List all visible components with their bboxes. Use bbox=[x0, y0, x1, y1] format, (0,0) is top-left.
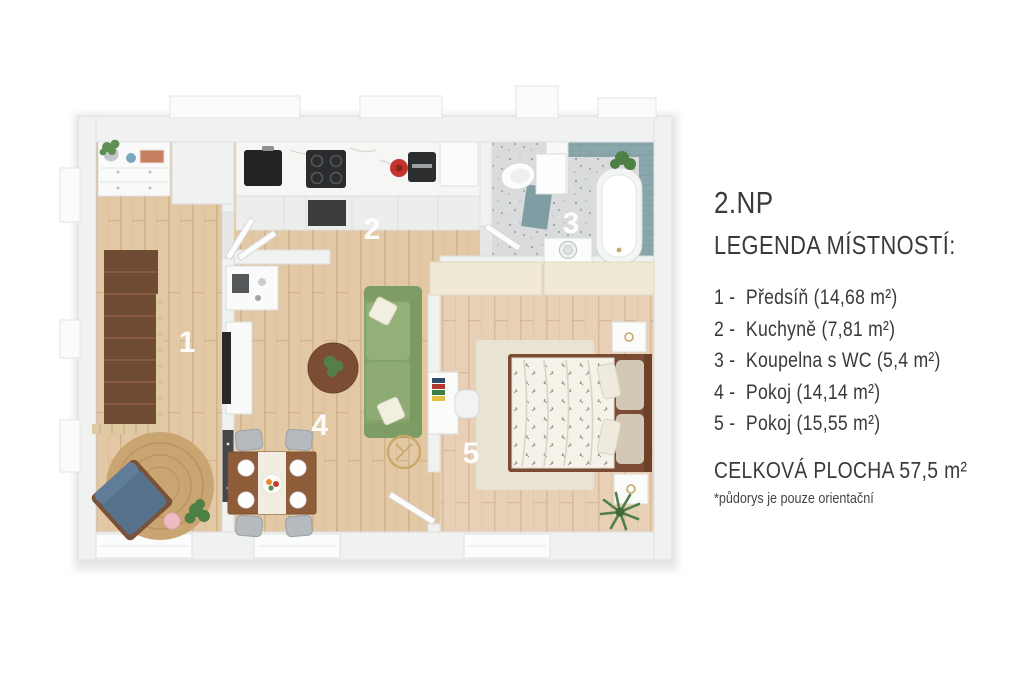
tv bbox=[222, 332, 231, 404]
coffee-table bbox=[308, 343, 358, 393]
room-label-5: 5 bbox=[463, 437, 480, 470]
dining-chair bbox=[235, 429, 263, 452]
plate bbox=[290, 460, 306, 476]
decor-bowl bbox=[126, 153, 136, 163]
plate bbox=[238, 460, 254, 476]
kitchen-sink bbox=[244, 150, 282, 186]
nightstand-top bbox=[612, 322, 646, 352]
legend-heading: LEGENDA MÍSTNOSTÍ: bbox=[714, 229, 991, 261]
bathtub bbox=[596, 168, 642, 264]
oven bbox=[308, 200, 346, 226]
legend-item-text: Pokoj (14,14 m²) bbox=[746, 377, 880, 409]
legend-item: 3 - Koupelna s WC (5,4 m²) bbox=[714, 345, 991, 377]
legend-item-text: Pokoj (15,55 m²) bbox=[746, 408, 880, 440]
total-area: CELKOVÁ PLOCHA 57,5 m² bbox=[714, 455, 991, 485]
kitchen-cabinet-fronts bbox=[236, 196, 480, 230]
wardrobe-right bbox=[544, 262, 654, 295]
room-label-2: 2 bbox=[364, 213, 381, 246]
dining-chair bbox=[285, 429, 313, 451]
dining-chair bbox=[235, 515, 263, 537]
sofa bbox=[364, 286, 422, 438]
espresso-machine bbox=[232, 274, 249, 293]
desk-chair bbox=[455, 390, 479, 418]
legend-list: 1 - Předsíň (14,68 m²) 2 - Kuchyně (7,81… bbox=[714, 282, 991, 440]
kitchen-counter bbox=[236, 142, 480, 230]
legend-item-number: 1 - bbox=[714, 282, 746, 314]
wardrobe-left bbox=[430, 262, 542, 295]
legend-item-text: Předsíň (14,68 m²) bbox=[746, 282, 898, 314]
legend-item-number: 4 - bbox=[714, 377, 746, 409]
legend-item-number: 5 - bbox=[714, 408, 746, 440]
room-label-4: 4 bbox=[312, 409, 329, 442]
legend-item: 2 - Kuchyně (7,81 m²) bbox=[714, 314, 991, 346]
washing-machine bbox=[544, 238, 592, 263]
pillow bbox=[616, 414, 644, 464]
bed bbox=[508, 354, 652, 472]
pink-toy bbox=[164, 513, 180, 529]
legend-item: 4 - Pokoj (14,14 m²) bbox=[714, 377, 991, 409]
dining-chair bbox=[285, 515, 313, 537]
decor-frame bbox=[140, 150, 164, 163]
floor-label: 2.NP bbox=[714, 186, 991, 220]
legend-item: 5 - Pokoj (15,55 m²) bbox=[714, 408, 991, 440]
legend-item-text: Kuchyně (7,81 m²) bbox=[746, 314, 895, 346]
plate bbox=[238, 492, 254, 508]
disclaimer: *půdorys je pouze orientační bbox=[714, 489, 991, 509]
headboard bbox=[644, 354, 652, 472]
pillow bbox=[616, 360, 644, 410]
legend-item: 1 - Předsíň (14,68 m²) bbox=[714, 282, 991, 314]
bathtub-drain bbox=[617, 248, 622, 253]
stair-railing-side bbox=[156, 294, 164, 426]
nightstand-bottom bbox=[614, 474, 648, 504]
wall-west bbox=[78, 116, 96, 560]
legend-item-number: 3 - bbox=[714, 345, 746, 377]
legend-panel: 2.NP LEGENDA MÍSTNOSTÍ: 1 - Předsíň (14,… bbox=[714, 186, 991, 509]
legend-item-number: 2 - bbox=[714, 314, 746, 346]
room-label-1: 1 bbox=[179, 326, 196, 359]
wall-north bbox=[78, 116, 672, 142]
wardrobe-row bbox=[430, 262, 654, 295]
door-hinge-dot bbox=[227, 443, 230, 446]
fridge bbox=[440, 142, 478, 186]
faucet bbox=[262, 146, 274, 151]
toilet-cistern bbox=[536, 154, 566, 194]
plate bbox=[290, 492, 306, 508]
legend-item-text: Koupelna s WC (5,4 m²) bbox=[746, 345, 941, 377]
room-label-3: 3 bbox=[563, 207, 580, 240]
wall-east bbox=[654, 116, 672, 560]
